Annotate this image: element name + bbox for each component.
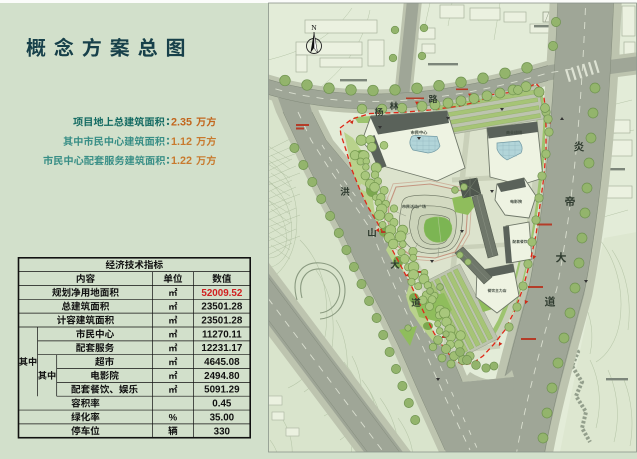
svg-text:%: % <box>169 412 178 423</box>
svg-text:12231.17: 12231.17 <box>201 343 242 354</box>
svg-text:35.00: 35.00 <box>210 412 235 423</box>
svg-text:11270.11: 11270.11 <box>202 329 242 340</box>
svg-text:N: N <box>311 23 317 32</box>
svg-text:330: 330 <box>214 426 231 437</box>
svg-text:1.12: 1.12 <box>171 136 192 148</box>
svg-text:2.35: 2.35 <box>171 117 192 129</box>
svg-text:23501.28: 23501.28 <box>201 302 242 313</box>
svg-text:4645.08: 4645.08 <box>204 357 240 368</box>
svg-text:0.45: 0.45 <box>212 399 232 410</box>
svg-text:5091.29: 5091.29 <box>204 385 240 396</box>
svg-text:2494.80: 2494.80 <box>204 371 240 382</box>
svg-text:52009.52: 52009.52 <box>201 288 242 299</box>
svg-text:23501.28: 23501.28 <box>201 316 242 327</box>
svg-text:1.22: 1.22 <box>171 155 192 167</box>
